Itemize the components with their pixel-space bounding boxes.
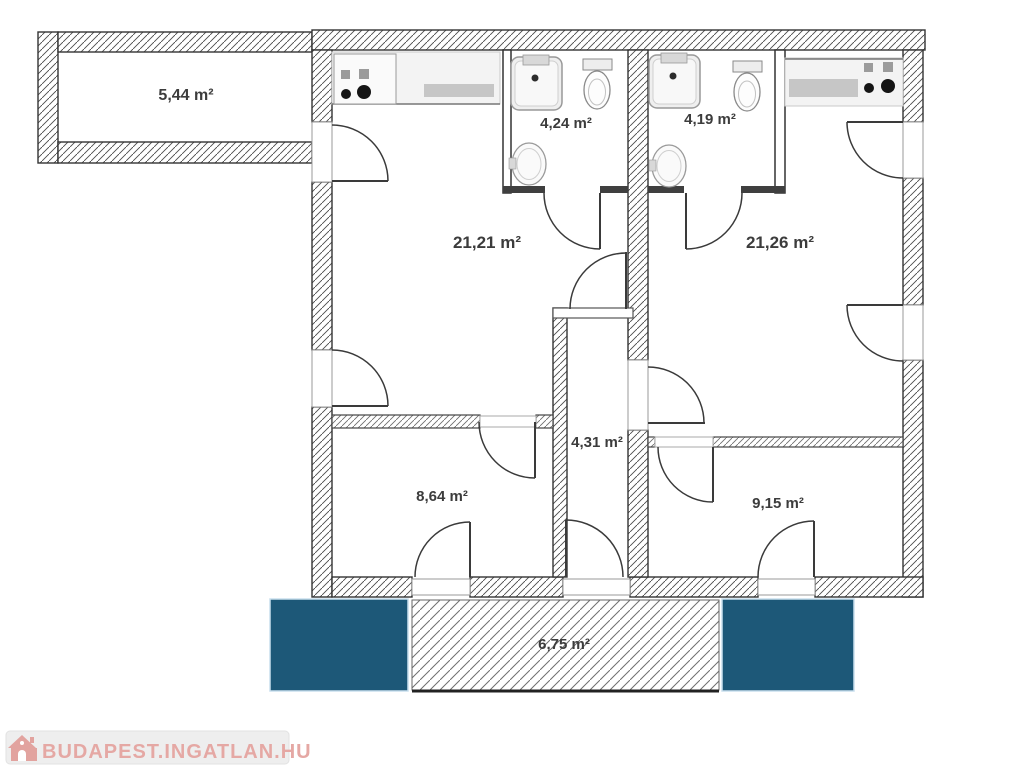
door-opening — [412, 579, 470, 595]
room-label-living-right: 21,26 m² — [746, 233, 814, 252]
stove-burner-back — [864, 63, 873, 72]
wall-main-bottom — [630, 577, 758, 597]
stove-burner-back — [341, 70, 350, 79]
stove-burners-icon — [341, 89, 351, 99]
room-label-bath-right: 4,19 m² — [684, 111, 736, 128]
wall-main-bottom — [332, 577, 412, 597]
door-opening — [480, 416, 536, 427]
toilet-icon — [584, 71, 610, 109]
room-label-bath-left: 4,24 m² — [540, 115, 592, 132]
room-label-small-left: 8,64 m² — [416, 488, 468, 505]
wall-bath-right-side — [775, 50, 785, 193]
door-opening — [312, 122, 332, 182]
kitchen-counter-sink-icon — [789, 79, 858, 97]
washbasin-faucet — [509, 158, 516, 169]
wall-bath-left-side — [503, 50, 511, 193]
door-swing-arc — [570, 252, 626, 309]
shower-faucet — [523, 55, 549, 65]
stove-burners-icon — [881, 79, 895, 93]
wall-center-divider — [628, 430, 648, 577]
door-swing-arc — [847, 122, 903, 178]
watermark-text: BUDAPEST.INGATLAN.HU — [42, 741, 312, 763]
wall-main-right — [903, 360, 923, 597]
door-opening — [563, 579, 630, 595]
wall-hallway-top — [553, 308, 633, 318]
toilet-tank — [733, 61, 762, 72]
shower-faucet — [661, 53, 687, 63]
wall-main-bottom — [470, 577, 563, 597]
wall-main-left — [312, 182, 332, 350]
terrace-left — [270, 599, 408, 691]
floor-plan-canvas: 5,44 m² 4,24 m² 4,19 m² 21,21 m² 21,26 m… — [0, 0, 1015, 768]
wall-main-top — [312, 30, 925, 50]
shower-drain — [670, 73, 677, 80]
door-swing-arc — [648, 367, 705, 423]
door-opening — [312, 350, 332, 407]
room-labels: 5,44 m² 4,24 m² 4,19 m² 21,21 m² 21,26 m… — [158, 87, 814, 653]
wall-room915-top — [648, 437, 655, 447]
wall-main-right — [903, 50, 923, 122]
partition-walls — [332, 50, 903, 447]
door-opening — [655, 437, 713, 447]
room-label-hallway: 4,31 m² — [571, 434, 623, 451]
door-swing-arc — [686, 193, 742, 249]
stove-burners-icon — [357, 85, 371, 99]
wall-room864-top — [536, 415, 553, 428]
floor-plan-svg: 5,44 m² 4,24 m² 4,19 m² 21,21 m² 21,26 m… — [0, 0, 1015, 768]
wall-room915-top — [713, 437, 903, 447]
terrace-right — [722, 599, 854, 691]
wall-main-right — [903, 178, 923, 305]
door-swing-arc — [847, 305, 903, 361]
door-opening — [758, 579, 815, 595]
wall-main-left — [312, 407, 332, 597]
kitchen-right — [785, 58, 903, 106]
wall-loggia-left — [38, 32, 58, 163]
wall-bath-left-front — [600, 186, 628, 193]
shower-drain — [532, 75, 539, 82]
stove-burner-back — [359, 69, 369, 79]
door-swing-arc — [658, 447, 713, 502]
wall-room864-top — [332, 415, 480, 428]
door-swing-arc — [332, 125, 388, 181]
wall-bath-left-front — [503, 186, 545, 193]
door-swing-arc — [479, 422, 535, 478]
toilet-tank — [583, 59, 612, 70]
wall-main-left — [312, 50, 332, 122]
room-label-balcony: 6,75 m² — [538, 636, 590, 653]
stove-burner-back — [883, 62, 893, 72]
shower-inner — [515, 61, 558, 106]
door-opening — [903, 122, 923, 178]
washbasin-faucet — [649, 160, 656, 171]
door-swing-arc — [566, 520, 623, 577]
door-swing-arc — [415, 522, 470, 577]
wall-main-bottom — [815, 577, 923, 597]
stove-burners-icon — [864, 83, 874, 93]
shower-inner — [653, 59, 696, 104]
kitchen-counter-sink-icon — [424, 84, 494, 97]
wall-hallway-left — [553, 308, 567, 577]
watermark-bar: BUDAPEST.INGATLAN.HU — [6, 731, 312, 764]
door-swing-arc — [332, 350, 388, 406]
door-opening — [903, 305, 923, 360]
room-label-loggia: 5,44 m² — [158, 87, 213, 104]
kitchen-left — [332, 52, 500, 104]
door-swing-arc — [758, 521, 814, 577]
wall-loggia-bottom — [58, 142, 312, 163]
wall-bath-right-front — [741, 186, 785, 193]
door-swing-arc — [544, 193, 600, 249]
wall-loggia-top — [58, 32, 312, 52]
toilet-icon — [734, 73, 760, 111]
room-label-living-left: 21,21 m² — [453, 233, 521, 252]
door-opening — [628, 360, 648, 430]
room-label-small-right: 9,15 m² — [752, 495, 804, 512]
